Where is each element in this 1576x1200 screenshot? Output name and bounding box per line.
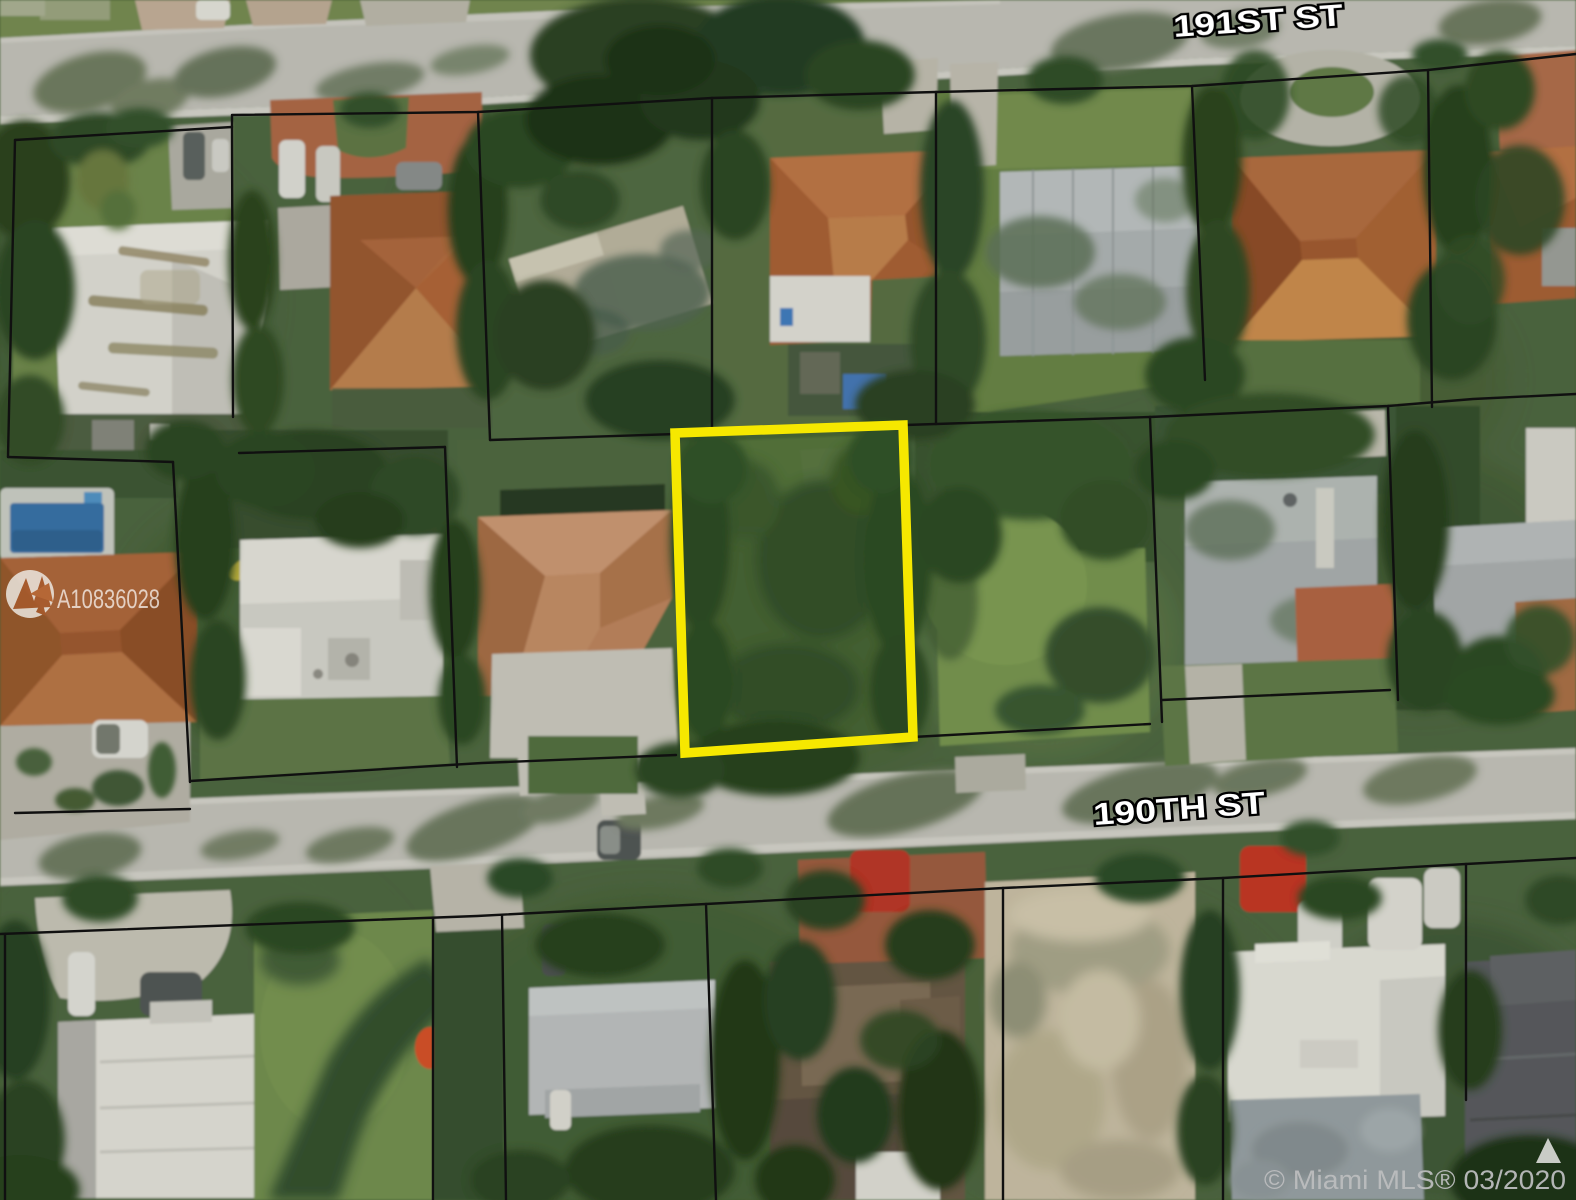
svg-text:A10836028: A10836028 <box>57 584 160 614</box>
svg-text:© Miami MLS® 03/2020: © Miami MLS® 03/2020 <box>1264 1165 1566 1195</box>
